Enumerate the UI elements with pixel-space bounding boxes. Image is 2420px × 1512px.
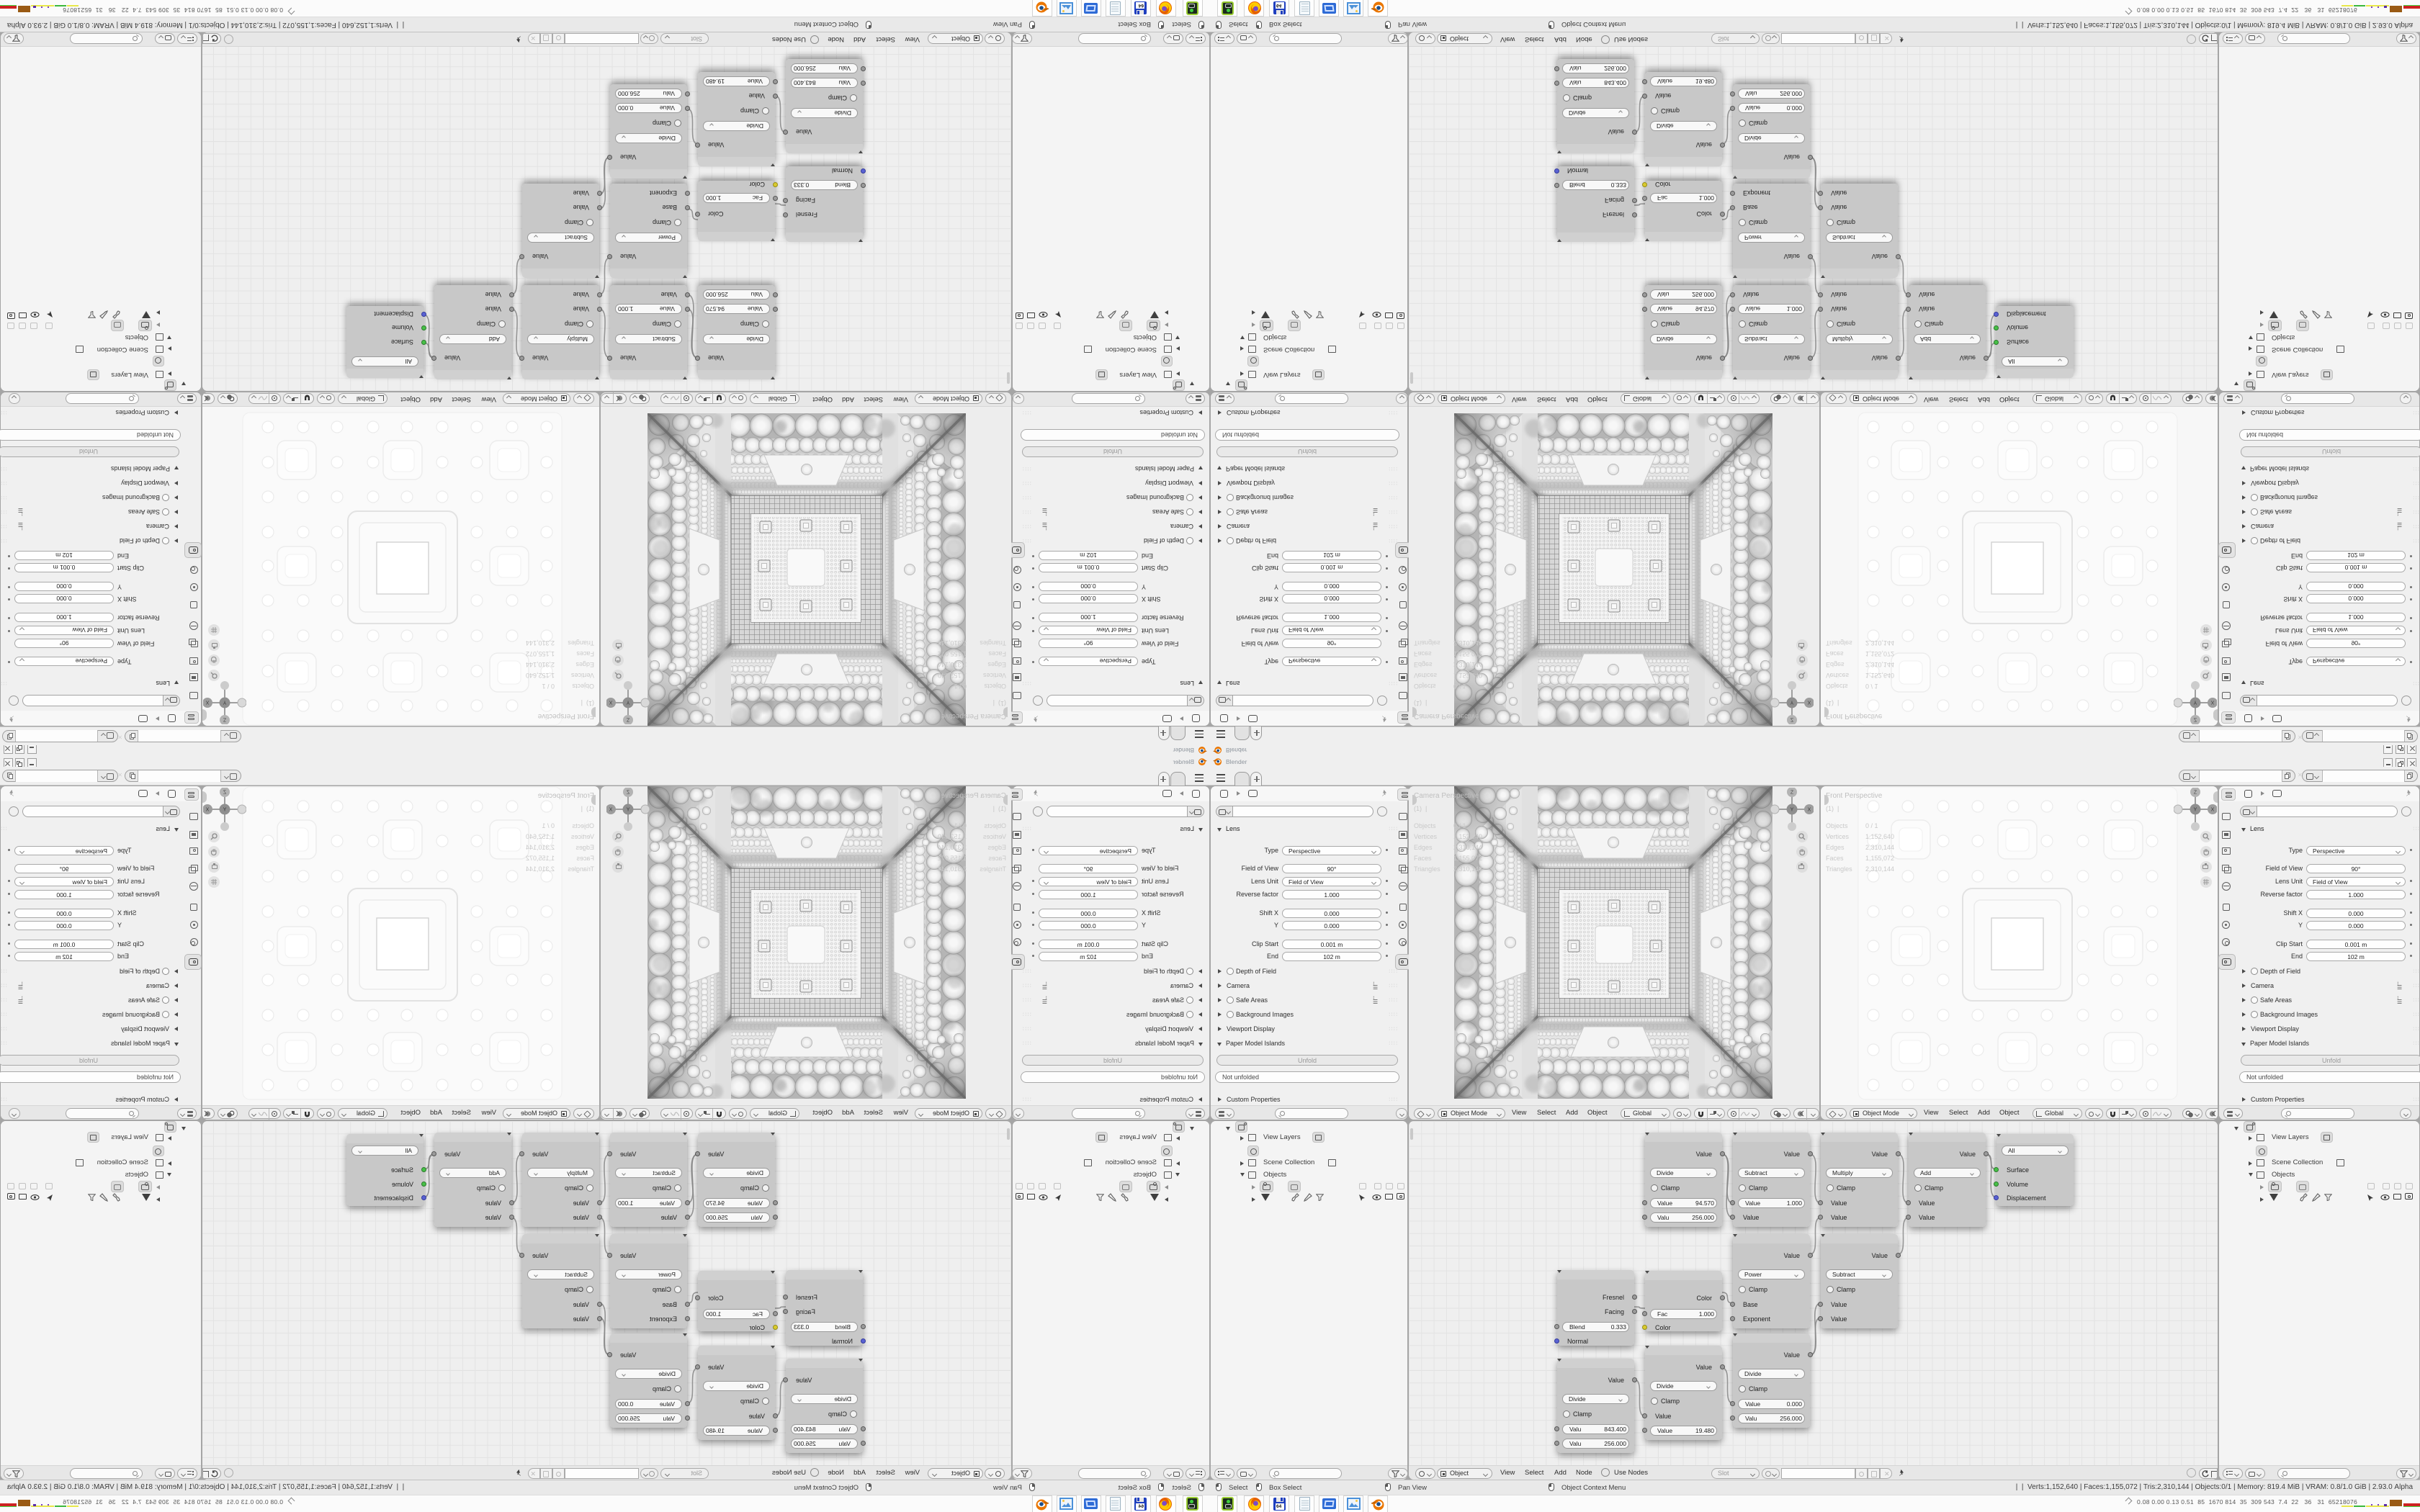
svg-text:X: X: [205, 700, 209, 705]
svg-text:Z: Z: [626, 717, 629, 722]
svg-text:Z: Z: [223, 791, 226, 796]
svg-text:Y: Y: [223, 700, 226, 705]
svg-text:X: X: [609, 808, 612, 813]
svg-text:Z: Z: [2194, 717, 2197, 722]
svg-text:X: X: [205, 808, 209, 813]
svg-text:Z: Z: [2194, 791, 2197, 796]
svg-text:Y: Y: [223, 808, 226, 813]
svg-text:Y: Y: [1791, 700, 1794, 705]
svg-text:X: X: [609, 700, 612, 705]
svg-text:Y: Y: [626, 700, 629, 705]
svg-text:X: X: [1808, 808, 1811, 813]
svg-text:X: X: [1808, 700, 1811, 705]
svg-text:Y: Y: [626, 808, 629, 813]
svg-text:Y: Y: [1791, 808, 1794, 813]
svg-text:Y: Y: [2194, 808, 2197, 813]
svg-text:X: X: [2211, 808, 2215, 813]
svg-text:Z: Z: [1791, 717, 1794, 722]
svg-text:Z: Z: [626, 791, 629, 796]
svg-text:Z: Z: [223, 717, 226, 722]
svg-text:X: X: [2211, 700, 2215, 705]
svg-text:Z: Z: [1791, 791, 1794, 796]
svg-text:Y: Y: [2194, 700, 2197, 705]
